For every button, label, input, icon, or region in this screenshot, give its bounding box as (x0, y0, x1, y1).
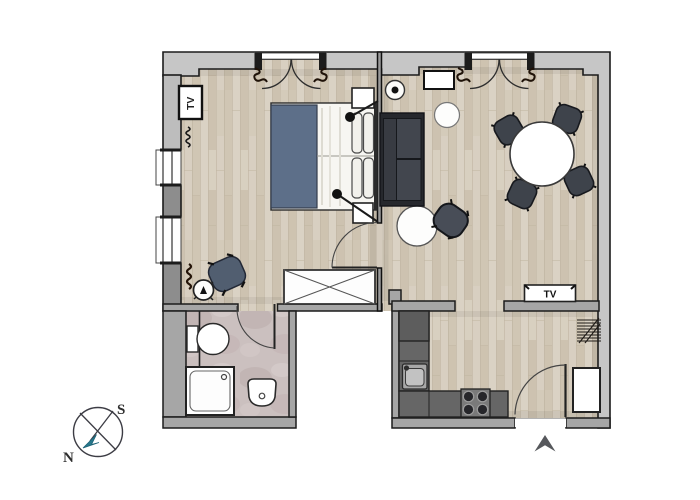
svg-text:S: S (117, 402, 125, 418)
svg-text:TV: TV (544, 290, 557, 301)
svg-text:N: N (63, 450, 74, 466)
svg-text:TV: TV (185, 97, 197, 110)
